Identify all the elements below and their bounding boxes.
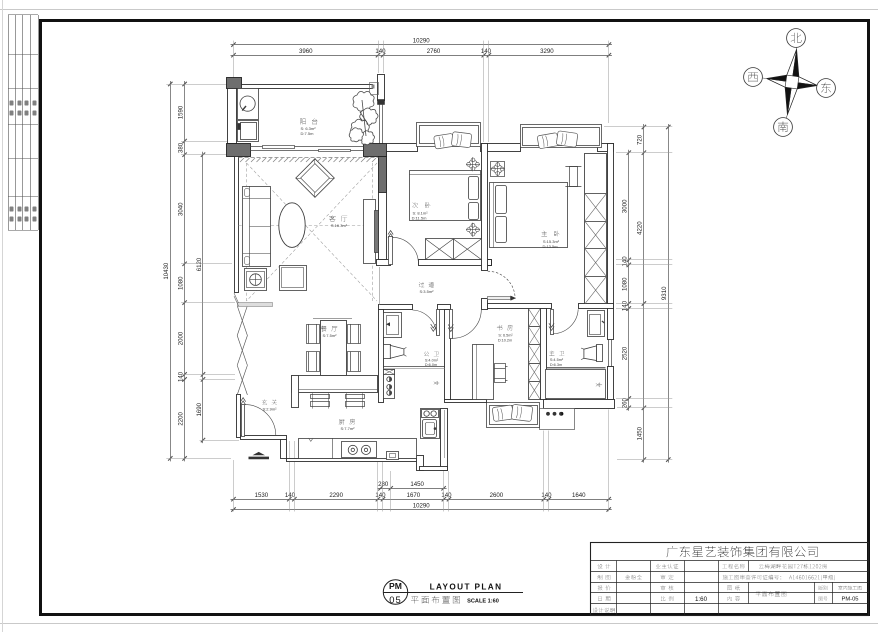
- svg-text:10290: 10290: [413, 502, 431, 509]
- svg-text:1530: 1530: [255, 492, 269, 499]
- svg-text:2290: 2290: [329, 492, 343, 499]
- svg-text:140: 140: [622, 256, 629, 267]
- svg-text:1080: 1080: [622, 277, 629, 291]
- svg-text:S:7.5m²: S:7.5m²: [322, 333, 337, 338]
- svg-text:9310: 9310: [661, 286, 668, 300]
- svg-text:S:2.9m²: S:2.9m²: [262, 407, 277, 412]
- svg-text:6120: 6120: [196, 257, 203, 271]
- svg-text:720: 720: [637, 134, 644, 145]
- svg-text:140: 140: [375, 48, 386, 55]
- svg-text:1450: 1450: [637, 426, 644, 440]
- svg-text:3290: 3290: [540, 48, 554, 55]
- svg-text:D:10.2m: D:10.2m: [498, 338, 512, 342]
- svg-text:380: 380: [177, 142, 184, 153]
- svg-text:140: 140: [285, 492, 296, 499]
- svg-text:3960: 3960: [299, 48, 313, 55]
- svg-text:260: 260: [622, 398, 629, 409]
- svg-text:S:7.7m²: S:7.7m²: [340, 426, 355, 431]
- svg-text:4220: 4220: [637, 221, 644, 235]
- svg-text:PM-05: PM-05: [841, 597, 858, 603]
- svg-text:140: 140: [541, 492, 552, 499]
- svg-text:S:4.5m²: S:4.5m²: [550, 358, 564, 362]
- svg-text:140: 140: [622, 300, 629, 311]
- svg-text:D:7.5m: D:7.5m: [301, 131, 315, 136]
- svg-text:D:6.3m: D:6.3m: [550, 363, 562, 367]
- svg-text:140: 140: [177, 371, 184, 382]
- svg-text:S:16.3m²: S:16.3m²: [331, 223, 348, 228]
- svg-text:3040: 3040: [177, 202, 184, 216]
- svg-text:05: 05: [389, 594, 401, 605]
- svg-text:D:11.5m: D:11.5m: [412, 216, 427, 221]
- svg-text:D:6.0m: D:6.0m: [425, 363, 437, 367]
- svg-text:PM: PM: [389, 581, 402, 591]
- svg-text:3000: 3000: [622, 199, 629, 213]
- svg-text:1690: 1690: [196, 402, 203, 416]
- svg-text:1590: 1590: [177, 105, 184, 119]
- svg-text:2200: 2200: [177, 412, 184, 426]
- svg-text:LAYOUT PLAN: LAYOUT PLAN: [430, 582, 503, 591]
- svg-text:D:13.5m: D:13.5m: [542, 244, 558, 249]
- svg-text:140: 140: [375, 492, 386, 499]
- svg-text:1:60: 1:60: [695, 596, 708, 603]
- svg-text:140: 140: [481, 48, 492, 55]
- svg-text:1670: 1670: [407, 492, 421, 499]
- svg-text:10290: 10290: [413, 37, 431, 44]
- svg-text:S:4.0m²: S:4.0m²: [425, 359, 439, 363]
- svg-text:140: 140: [441, 492, 452, 499]
- svg-text:2000: 2000: [177, 331, 184, 345]
- svg-text:1450: 1450: [410, 481, 424, 488]
- svg-text:S: 6.5m²: S: 6.5m²: [498, 333, 513, 337]
- svg-text:2760: 2760: [427, 48, 441, 55]
- svg-text:2600: 2600: [490, 492, 504, 499]
- svg-text:2520: 2520: [622, 346, 629, 360]
- svg-text:10430: 10430: [163, 262, 170, 280]
- svg-text:S:3.5m²: S:3.5m²: [419, 289, 434, 294]
- svg-text:1640: 1640: [572, 492, 586, 499]
- svg-text:SCALE 1:60: SCALE 1:60: [467, 599, 499, 605]
- svg-text:280: 280: [378, 481, 389, 488]
- svg-text:1080: 1080: [177, 276, 184, 290]
